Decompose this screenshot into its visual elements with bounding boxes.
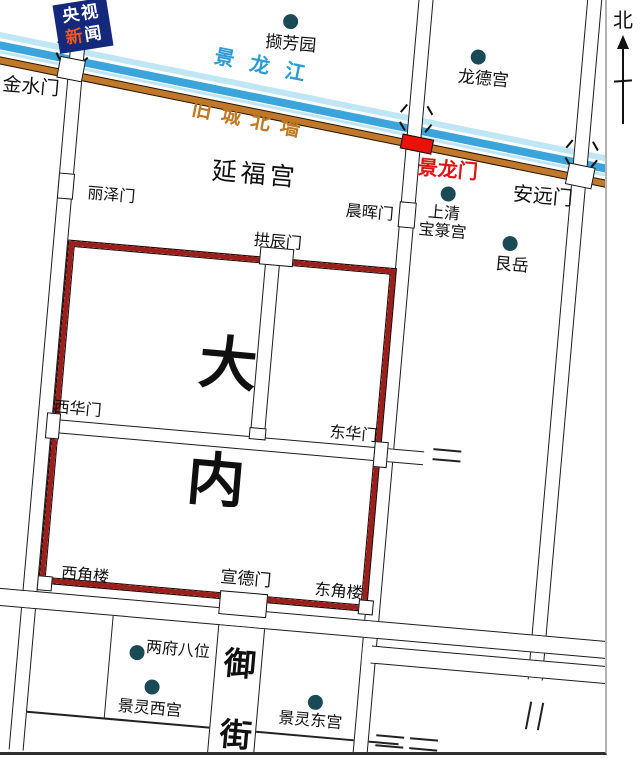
map-area: 景龙江旧城北墙金水门丽泽门延福宫拱辰门晨晖门景龙门安远门上清宝箓宫艮岳龙德宫撷芳… <box>0 0 607 755</box>
label-jinglongmen: 景龙门 <box>417 157 479 183</box>
street-crossing <box>529 661 543 677</box>
street-crossing <box>531 635 545 652</box>
label-chenhuimen: 晨晖门 <box>345 203 394 224</box>
bottom-street-line <box>256 731 354 742</box>
label-jinshuimen: 金水门 <box>2 75 61 100</box>
gate-xuandemen <box>218 590 268 618</box>
street-break-mark <box>537 703 544 731</box>
block-edge-line <box>104 616 114 718</box>
gate-xijiaolou <box>37 575 53 591</box>
label-yujie-yu: 御 <box>222 647 257 683</box>
dot-liangfubawei <box>129 644 145 660</box>
street-anyuanmen <box>528 0 603 681</box>
gate-chenhuimen <box>398 201 417 228</box>
street-break-mark <box>433 448 461 452</box>
dot-jingling-xigong <box>144 679 160 695</box>
dot-xiefangyuan <box>283 13 299 29</box>
label-danei-nei: 内 <box>184 448 247 514</box>
dot-genyue <box>502 235 518 251</box>
street-break-mark <box>375 744 403 748</box>
street-break-mark <box>525 702 532 730</box>
label-danei-da: 大 <box>196 332 259 398</box>
street-break-mark <box>409 747 437 751</box>
label-liangfubawei: 两府八位 <box>145 639 210 661</box>
label-shangqing-2: 宝箓宫 <box>418 221 467 242</box>
street-crossing <box>362 647 376 663</box>
street-break-mark <box>410 737 438 741</box>
dot-longdegong <box>470 49 486 65</box>
north-arrow-icon <box>617 35 629 49</box>
label-anyuanmen: 安远门 <box>512 183 574 209</box>
label-yanfugong: 延福宫 <box>211 158 300 192</box>
street-break-mark <box>432 458 460 462</box>
label-genyue: 艮岳 <box>494 256 529 277</box>
cctv-news-logo: 央视 新闻 <box>52 0 113 54</box>
north-indicator: 北 <box>609 4 639 134</box>
gate-lizemen <box>57 172 75 199</box>
label-yujie-jie: 街 <box>218 718 253 754</box>
map-tilt-layer: 景龙江旧城北墙金水门丽泽门延福宫拱辰门晨晖门景龙门安远门上清宝箓宫艮岳龙德宫撷芳… <box>0 0 607 755</box>
street-break-mark <box>376 734 404 738</box>
label-jingling-donggong: 景灵东宫 <box>278 710 343 732</box>
dot-jingling-donggong <box>307 694 323 710</box>
gate-jinshuimen <box>56 56 86 83</box>
label-longdegong: 龙德宫 <box>457 69 509 91</box>
label-xiefangyuan: 撷芳园 <box>264 34 316 56</box>
jinglong-river <box>0 30 607 202</box>
label-jingling-xigong: 景灵西宫 <box>117 698 182 720</box>
map-canvas: 景龙江旧城北墙金水门丽泽门延福宫拱辰门晨晖门景龙门安远门上清宝箓宫艮岳龙德宫撷芳… <box>0 0 640 759</box>
street-crossing <box>22 591 36 608</box>
label-lizemen: 丽泽门 <box>87 185 136 206</box>
north-arrow-shaft <box>622 48 624 124</box>
street-crossing <box>364 621 378 638</box>
logo-line2: 新闻 <box>64 23 105 50</box>
gate-corridor-junction <box>249 427 267 440</box>
bridge-jinglongmen <box>403 106 429 130</box>
north-label: 北 <box>613 4 633 33</box>
dot-shangqing-baolugong <box>440 186 456 202</box>
